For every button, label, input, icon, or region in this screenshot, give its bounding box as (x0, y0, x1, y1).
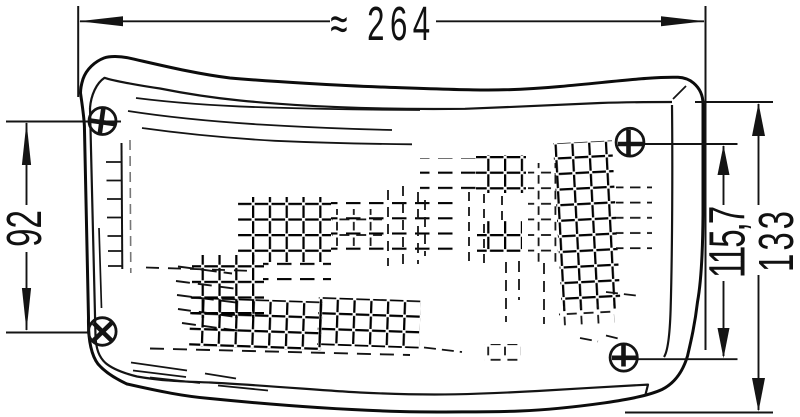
svg-text:92: 92 (0, 210, 52, 247)
svg-text:≈ 264: ≈ 264 (330, 0, 435, 51)
svg-text:133: 133 (748, 208, 800, 272)
